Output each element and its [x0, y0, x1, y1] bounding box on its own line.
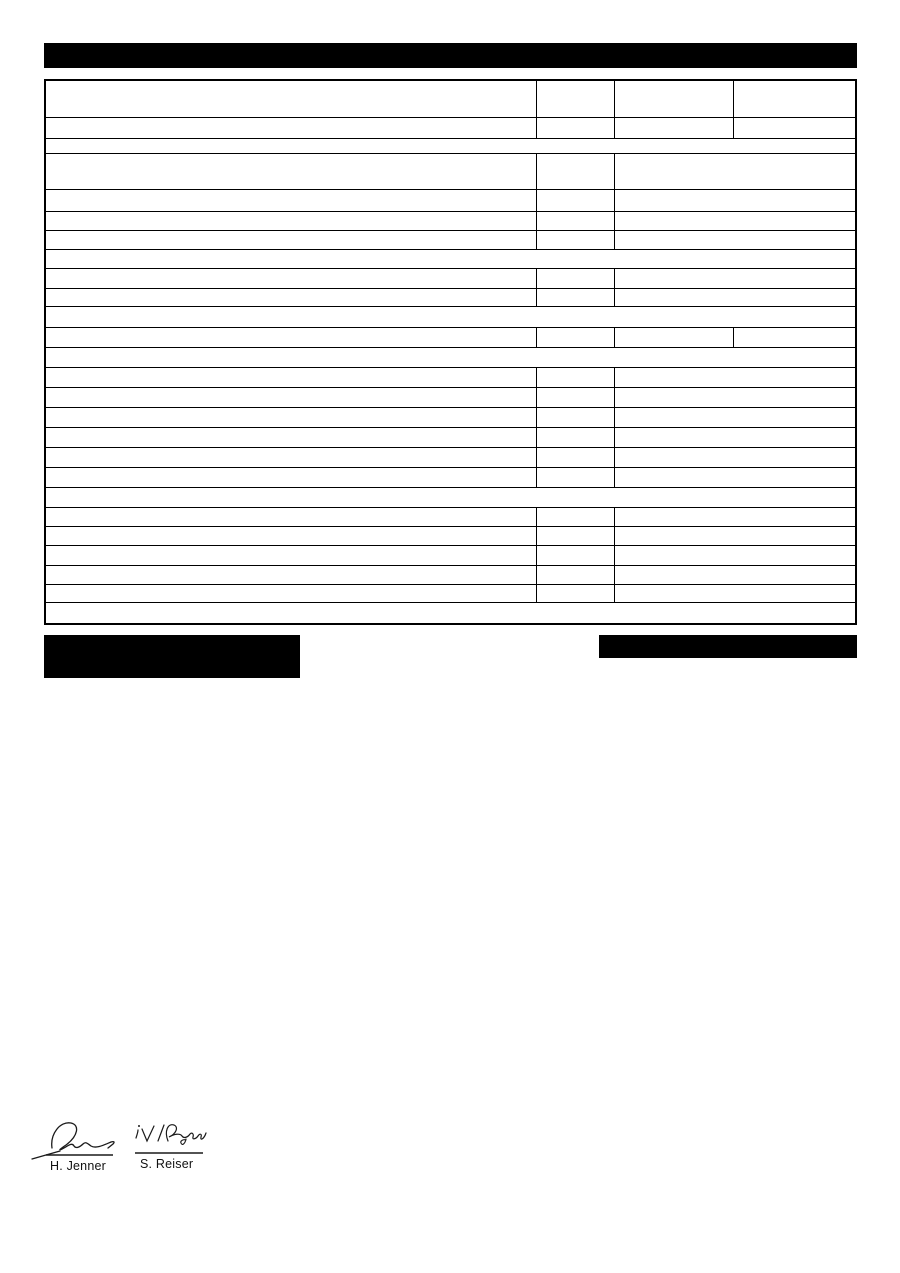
table-cell: [46, 190, 537, 211]
table-cell: [537, 328, 616, 347]
table-row: [46, 328, 855, 348]
table-cell: [734, 118, 855, 138]
document-page: H. Jenner S. Reiser: [0, 0, 900, 1273]
table-cell: [46, 154, 537, 189]
table-cell: [46, 448, 537, 467]
table-cell: [46, 139, 855, 153]
table-cell: [615, 468, 855, 487]
table-cell: [537, 448, 616, 467]
table-row: [46, 527, 855, 546]
table-cell: [46, 328, 537, 347]
table-cell: [615, 212, 855, 230]
table-row: [46, 231, 855, 250]
table-cell: [537, 585, 616, 602]
table-cell: [615, 328, 733, 347]
table-cell: [46, 566, 537, 584]
table-cell: [537, 212, 616, 230]
table-cell: [615, 154, 855, 189]
table-cell: [615, 190, 855, 211]
signature-name-jenner: H. Jenner: [50, 1159, 123, 1173]
redacted-block-left: [44, 635, 300, 678]
table-cell: [537, 269, 616, 288]
table-cell: [537, 527, 616, 545]
table-cell: [46, 348, 855, 367]
table-row: [46, 585, 855, 603]
table-cell: [537, 231, 616, 249]
signature-block-jenner: H. Jenner: [28, 1118, 123, 1173]
table-cell: [46, 250, 855, 268]
table-cell: [615, 566, 855, 584]
table-cell: [537, 81, 616, 117]
redacted-block-right: [599, 635, 857, 658]
table-row: [46, 212, 855, 231]
table-cell: [537, 368, 616, 387]
table-cell: [537, 118, 616, 138]
table-row: [46, 289, 855, 307]
table-section-row: [46, 307, 855, 328]
table-cell: [615, 368, 855, 387]
table-cell: [537, 289, 616, 306]
table-row: [46, 428, 855, 448]
table-cell: [615, 408, 855, 427]
table-section-row: [46, 139, 855, 154]
table-cell: [615, 428, 855, 447]
table-row: [46, 468, 855, 488]
table-cell: [46, 527, 537, 545]
table-cell: [46, 388, 537, 407]
table-cell: [615, 289, 855, 306]
table-row: [46, 118, 855, 139]
table-row: [46, 566, 855, 585]
table-cell: [537, 468, 616, 487]
table-row: [46, 448, 855, 468]
signature-name-reiser: S. Reiser: [140, 1157, 208, 1171]
table-cell: [615, 388, 855, 407]
table-cell: [46, 212, 537, 230]
table-cell: [537, 408, 616, 427]
table-cell: [615, 118, 733, 138]
table-cell: [46, 488, 855, 507]
table-cell: [46, 118, 537, 138]
table-cell: [46, 307, 855, 327]
table-cell: [537, 428, 616, 447]
table-cell: [615, 81, 733, 117]
table-cell: [46, 368, 537, 387]
table-cell: [615, 527, 855, 545]
table-cell: [537, 154, 616, 189]
table-cell: [46, 468, 537, 487]
table-cell: [46, 269, 537, 288]
table-cell: [46, 508, 537, 526]
table-cell: [46, 81, 537, 117]
table-cell: [615, 546, 855, 565]
table-cell: [734, 328, 855, 347]
table-cell: [734, 81, 855, 117]
table-cell: [615, 269, 855, 288]
signature-block-reiser: S. Reiser: [128, 1118, 208, 1171]
table-cell: [615, 448, 855, 467]
table-cell: [46, 546, 537, 565]
table-row: [46, 190, 855, 212]
reiser-signature-scrawl: [128, 1118, 208, 1158]
table-row: [46, 154, 855, 190]
table-cell: [615, 231, 855, 249]
table-section-row: [46, 348, 855, 368]
redacted-title-bar: [44, 43, 857, 68]
table-cell: [537, 190, 616, 211]
table-row: [46, 508, 855, 527]
table-row: [46, 546, 855, 566]
table-row: [46, 408, 855, 428]
jenner-signature-scrawl: [28, 1118, 123, 1160]
table-cell: [537, 566, 616, 584]
table-row: [46, 368, 855, 388]
table-row: [46, 388, 855, 408]
table-section-row: [46, 603, 855, 623]
table-cell: [46, 231, 537, 249]
table-cell: [46, 289, 537, 306]
table-cell: [537, 508, 616, 526]
table-row: [46, 269, 855, 289]
table-cell: [46, 603, 855, 623]
table-cell: [615, 508, 855, 526]
table-cell: [46, 585, 537, 602]
table-section-row: [46, 250, 855, 269]
table-cell: [537, 546, 616, 565]
table-cell: [537, 388, 616, 407]
table-cell: [615, 585, 855, 602]
table-row: [46, 81, 855, 118]
table-cell: [46, 408, 537, 427]
table-section-row: [46, 488, 855, 508]
spec-table: [44, 79, 857, 625]
table-cell: [46, 428, 537, 447]
